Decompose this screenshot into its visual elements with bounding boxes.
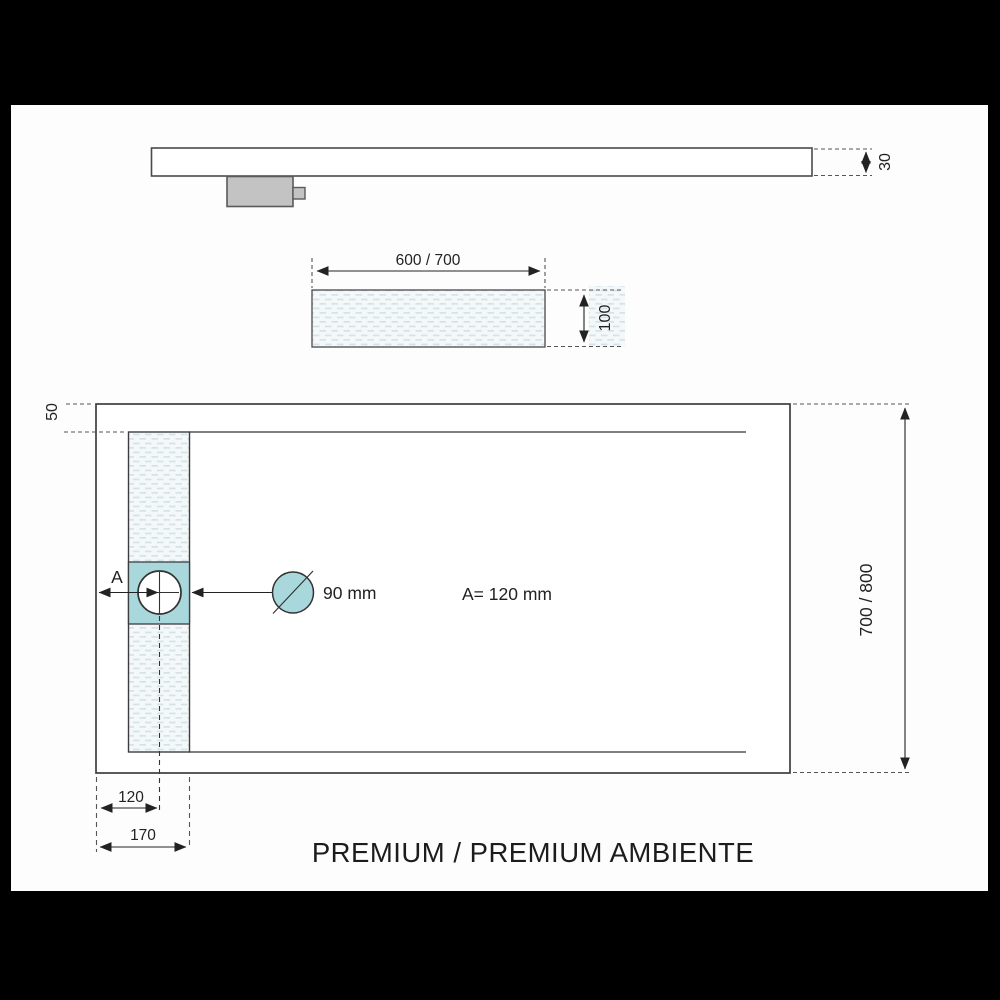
- tray-profile: [152, 148, 813, 176]
- drain-diameter-value: 90 mm: [323, 583, 376, 603]
- drain-center-offset-value: 120: [118, 789, 144, 806]
- diameter-symbol: [273, 571, 314, 614]
- channel-depth-value: 100: [597, 305, 614, 332]
- product-title: PREMIUM / PREMIUM AMBIENTE: [312, 837, 754, 868]
- drain-trap-box: [227, 177, 293, 207]
- thickness-value: 30: [877, 153, 894, 171]
- channel-width-value: 600 / 700: [396, 252, 461, 269]
- plan-view: [96, 404, 790, 773]
- drain-outlet-stub: [293, 188, 305, 200]
- channel-body: [312, 290, 545, 347]
- dimension-a-label: A: [111, 567, 123, 587]
- technical-drawing: 30 600 / 700 100 50 A: [0, 0, 1000, 1000]
- channel-strip-offset-value: 170: [130, 827, 156, 844]
- tray-outline: [96, 404, 790, 773]
- drain-distance-note: A= 120 mm: [462, 584, 552, 604]
- screenshot-root: 30 600 / 700 100 50 A: [0, 0, 1000, 1000]
- edge-offset-value: 50: [44, 403, 61, 421]
- tray-length-value: 700 / 800: [856, 563, 876, 636]
